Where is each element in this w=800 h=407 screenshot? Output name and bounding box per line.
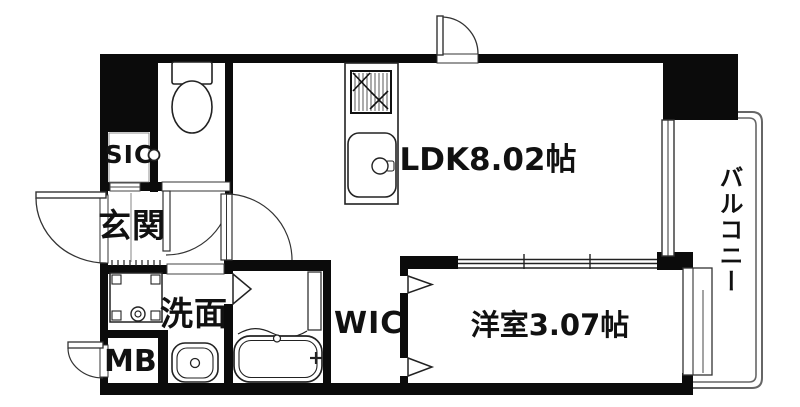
top-door-swing — [437, 16, 478, 63]
washroom-doorway — [167, 264, 224, 274]
label-entrance: 玄関 — [93, 209, 171, 242]
sliding-partition — [458, 254, 657, 269]
vanity-sink-icon — [172, 343, 218, 382]
hall-ldk-door-swing — [221, 194, 292, 260]
sic-door — [110, 183, 140, 191]
label-wic: WIC — [334, 309, 402, 339]
bathtub-icon — [234, 335, 322, 382]
wic-folding-doors — [408, 276, 432, 376]
ldk-balcony-window — [662, 120, 674, 256]
label-bedroom: 洋室3.07帖 — [462, 311, 638, 340]
label-sic: SIC — [102, 142, 156, 167]
kitchen-sink-icon — [348, 133, 396, 197]
label-ldk: LDK8.02帖 — [393, 145, 583, 176]
kitchen-counter — [345, 63, 398, 204]
toilet-icon — [172, 62, 212, 133]
washing-machine-icon — [110, 273, 162, 322]
kitchen-stove-icon — [351, 71, 391, 113]
floorplan: SIC 玄関 LDK8.02帖 バルコニー 洗面 MB WIC 洋室3.07帖 — [0, 0, 800, 407]
label-meter-box: MB — [104, 347, 156, 377]
bath-counter — [308, 272, 321, 330]
label-balcony: バルコニー — [707, 165, 741, 310]
toilet-door-swing — [162, 182, 230, 255]
mb-door-swing — [68, 342, 108, 378]
bath-folding-door — [233, 274, 251, 304]
label-washroom: 洗面 — [157, 297, 231, 330]
